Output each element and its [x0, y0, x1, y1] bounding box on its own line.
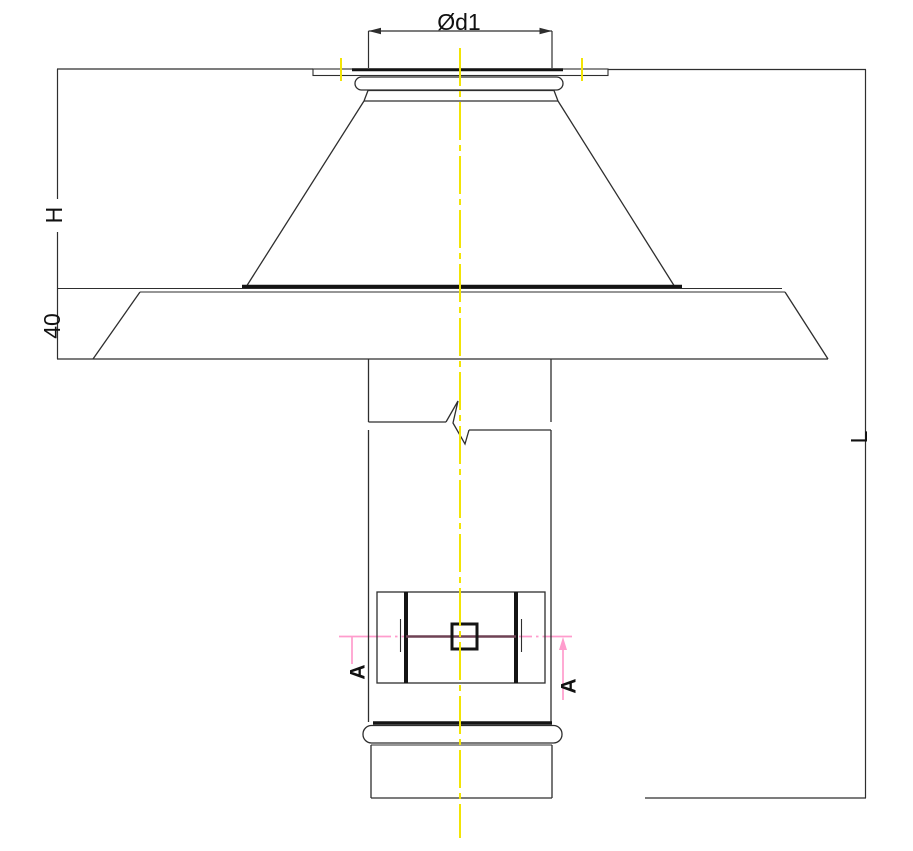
- centerlines: [341, 48, 582, 838]
- dimension-arrow-d1-left: [369, 28, 382, 34]
- label-section-a-right: A: [558, 678, 581, 693]
- dimension-arrow-d1-right: [540, 28, 553, 34]
- dimension-labels: Ød1 H 40 L A A: [39, 9, 872, 694]
- label-length-l: L: [846, 430, 872, 443]
- neck-left-side: [364, 91, 368, 102]
- bottom-bead: [363, 726, 562, 744]
- label-diameter-d1: Ød1: [437, 9, 480, 35]
- section-arrowhead-right: [559, 637, 567, 650]
- cone-right-slope: [558, 101, 674, 286]
- cowl-geometry: [57, 69, 828, 798]
- label-height-h: H: [41, 207, 67, 224]
- neck-right-side: [554, 91, 558, 102]
- technical-drawing: Ød1 H 40 L A A: [0, 0, 913, 851]
- break-zigzag: [446, 401, 469, 444]
- base-plate-right-slant: [785, 292, 828, 359]
- label-section-a-left: A: [347, 664, 370, 679]
- base-plate-left-slant: [93, 292, 140, 359]
- section-cut-a-a: [339, 637, 572, 701]
- technical-drawing-canvas: Ød1 H 40 L A A: [0, 0, 913, 851]
- label-plate-40: 40: [39, 313, 65, 339]
- cone-left-slope: [247, 101, 364, 286]
